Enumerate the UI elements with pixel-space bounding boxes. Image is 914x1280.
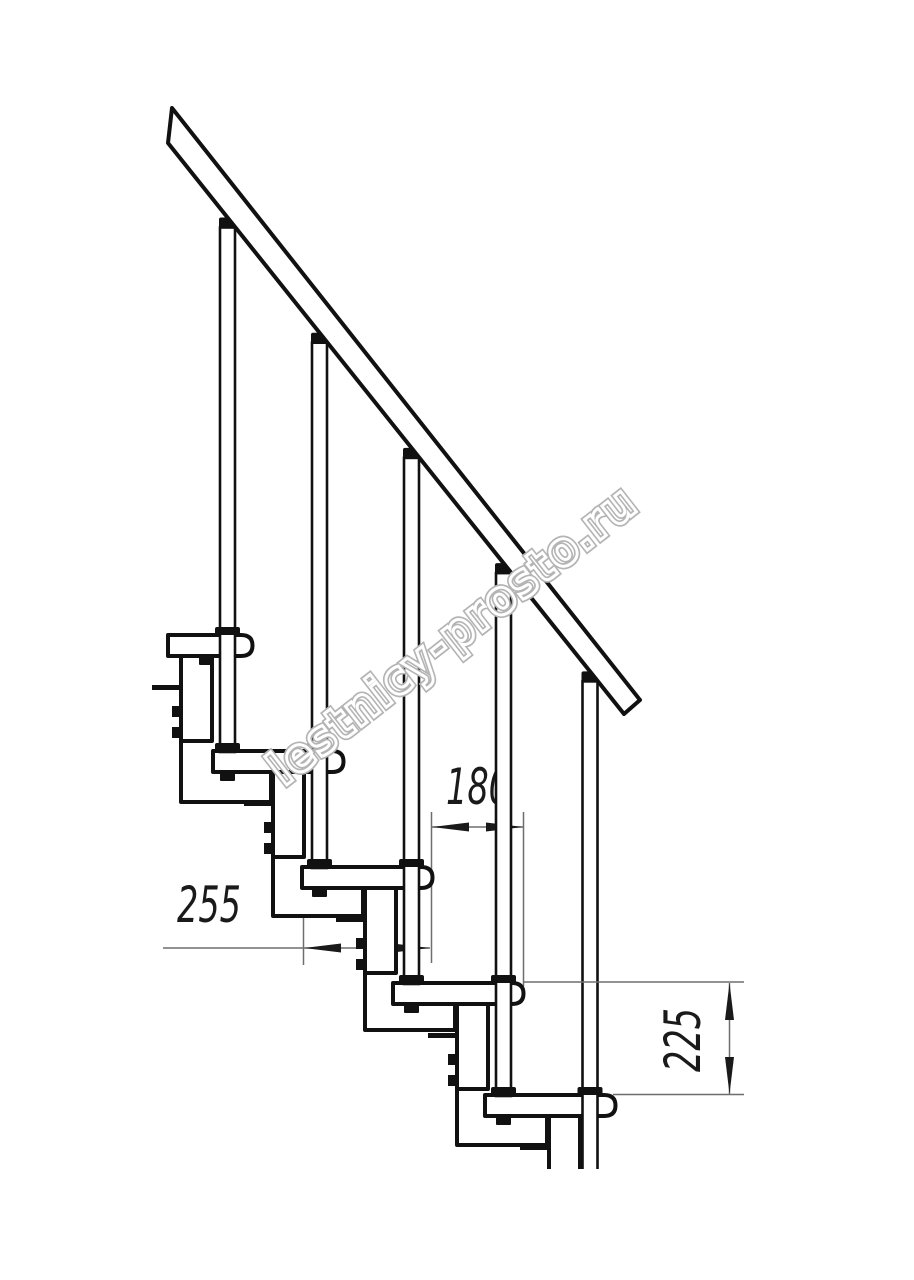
baluster-5 <box>578 671 603 1180</box>
staircase-drawing: 180 255 225 <box>0 0 914 1280</box>
bracket-tab-4 <box>428 1033 459 1038</box>
bracket-tab-1 <box>152 685 183 690</box>
baluster-foot <box>215 743 240 752</box>
drawing-cut-mask <box>430 1169 750 1280</box>
baluster-collar <box>215 627 240 635</box>
tread-1 <box>168 635 253 656</box>
baluster-1 <box>215 218 240 753</box>
bolt <box>172 706 181 717</box>
bolt <box>264 822 273 833</box>
baluster-foot <box>307 859 332 868</box>
baluster-collar <box>491 975 516 983</box>
dimension-255-label: 255 <box>177 876 241 934</box>
bracket-tab-2 <box>244 801 275 806</box>
nut-under-tread-1 <box>199 655 214 665</box>
bolt <box>356 959 365 970</box>
baluster-collar <box>578 1087 603 1095</box>
nut-under-tread-5 <box>496 1115 511 1125</box>
baluster-2 <box>307 333 332 868</box>
nut-under-tread-3 <box>312 887 327 897</box>
bolt <box>264 843 273 854</box>
dimension-225: 225 <box>654 983 734 1094</box>
bolt <box>172 727 181 738</box>
nut-under-tread-2 <box>220 771 235 781</box>
bracket-tab-3 <box>336 917 367 922</box>
bolt <box>448 1054 457 1065</box>
dimension-225-label: 225 <box>654 1008 712 1072</box>
nut-under-tread-4 <box>404 1003 419 1013</box>
bracket-tab-5 <box>520 1145 551 1150</box>
baluster-3 <box>399 448 424 984</box>
baluster-foot <box>491 1087 516 1096</box>
baluster-4 <box>491 563 516 1096</box>
bolt <box>448 1075 457 1086</box>
bolt <box>356 938 365 949</box>
dimension-lines-under: 180 255 225 <box>163 758 744 1095</box>
drawing-canvas: 180 255 225 <box>0 0 914 1280</box>
baluster-foot <box>399 975 424 984</box>
baluster-collar <box>399 859 424 867</box>
